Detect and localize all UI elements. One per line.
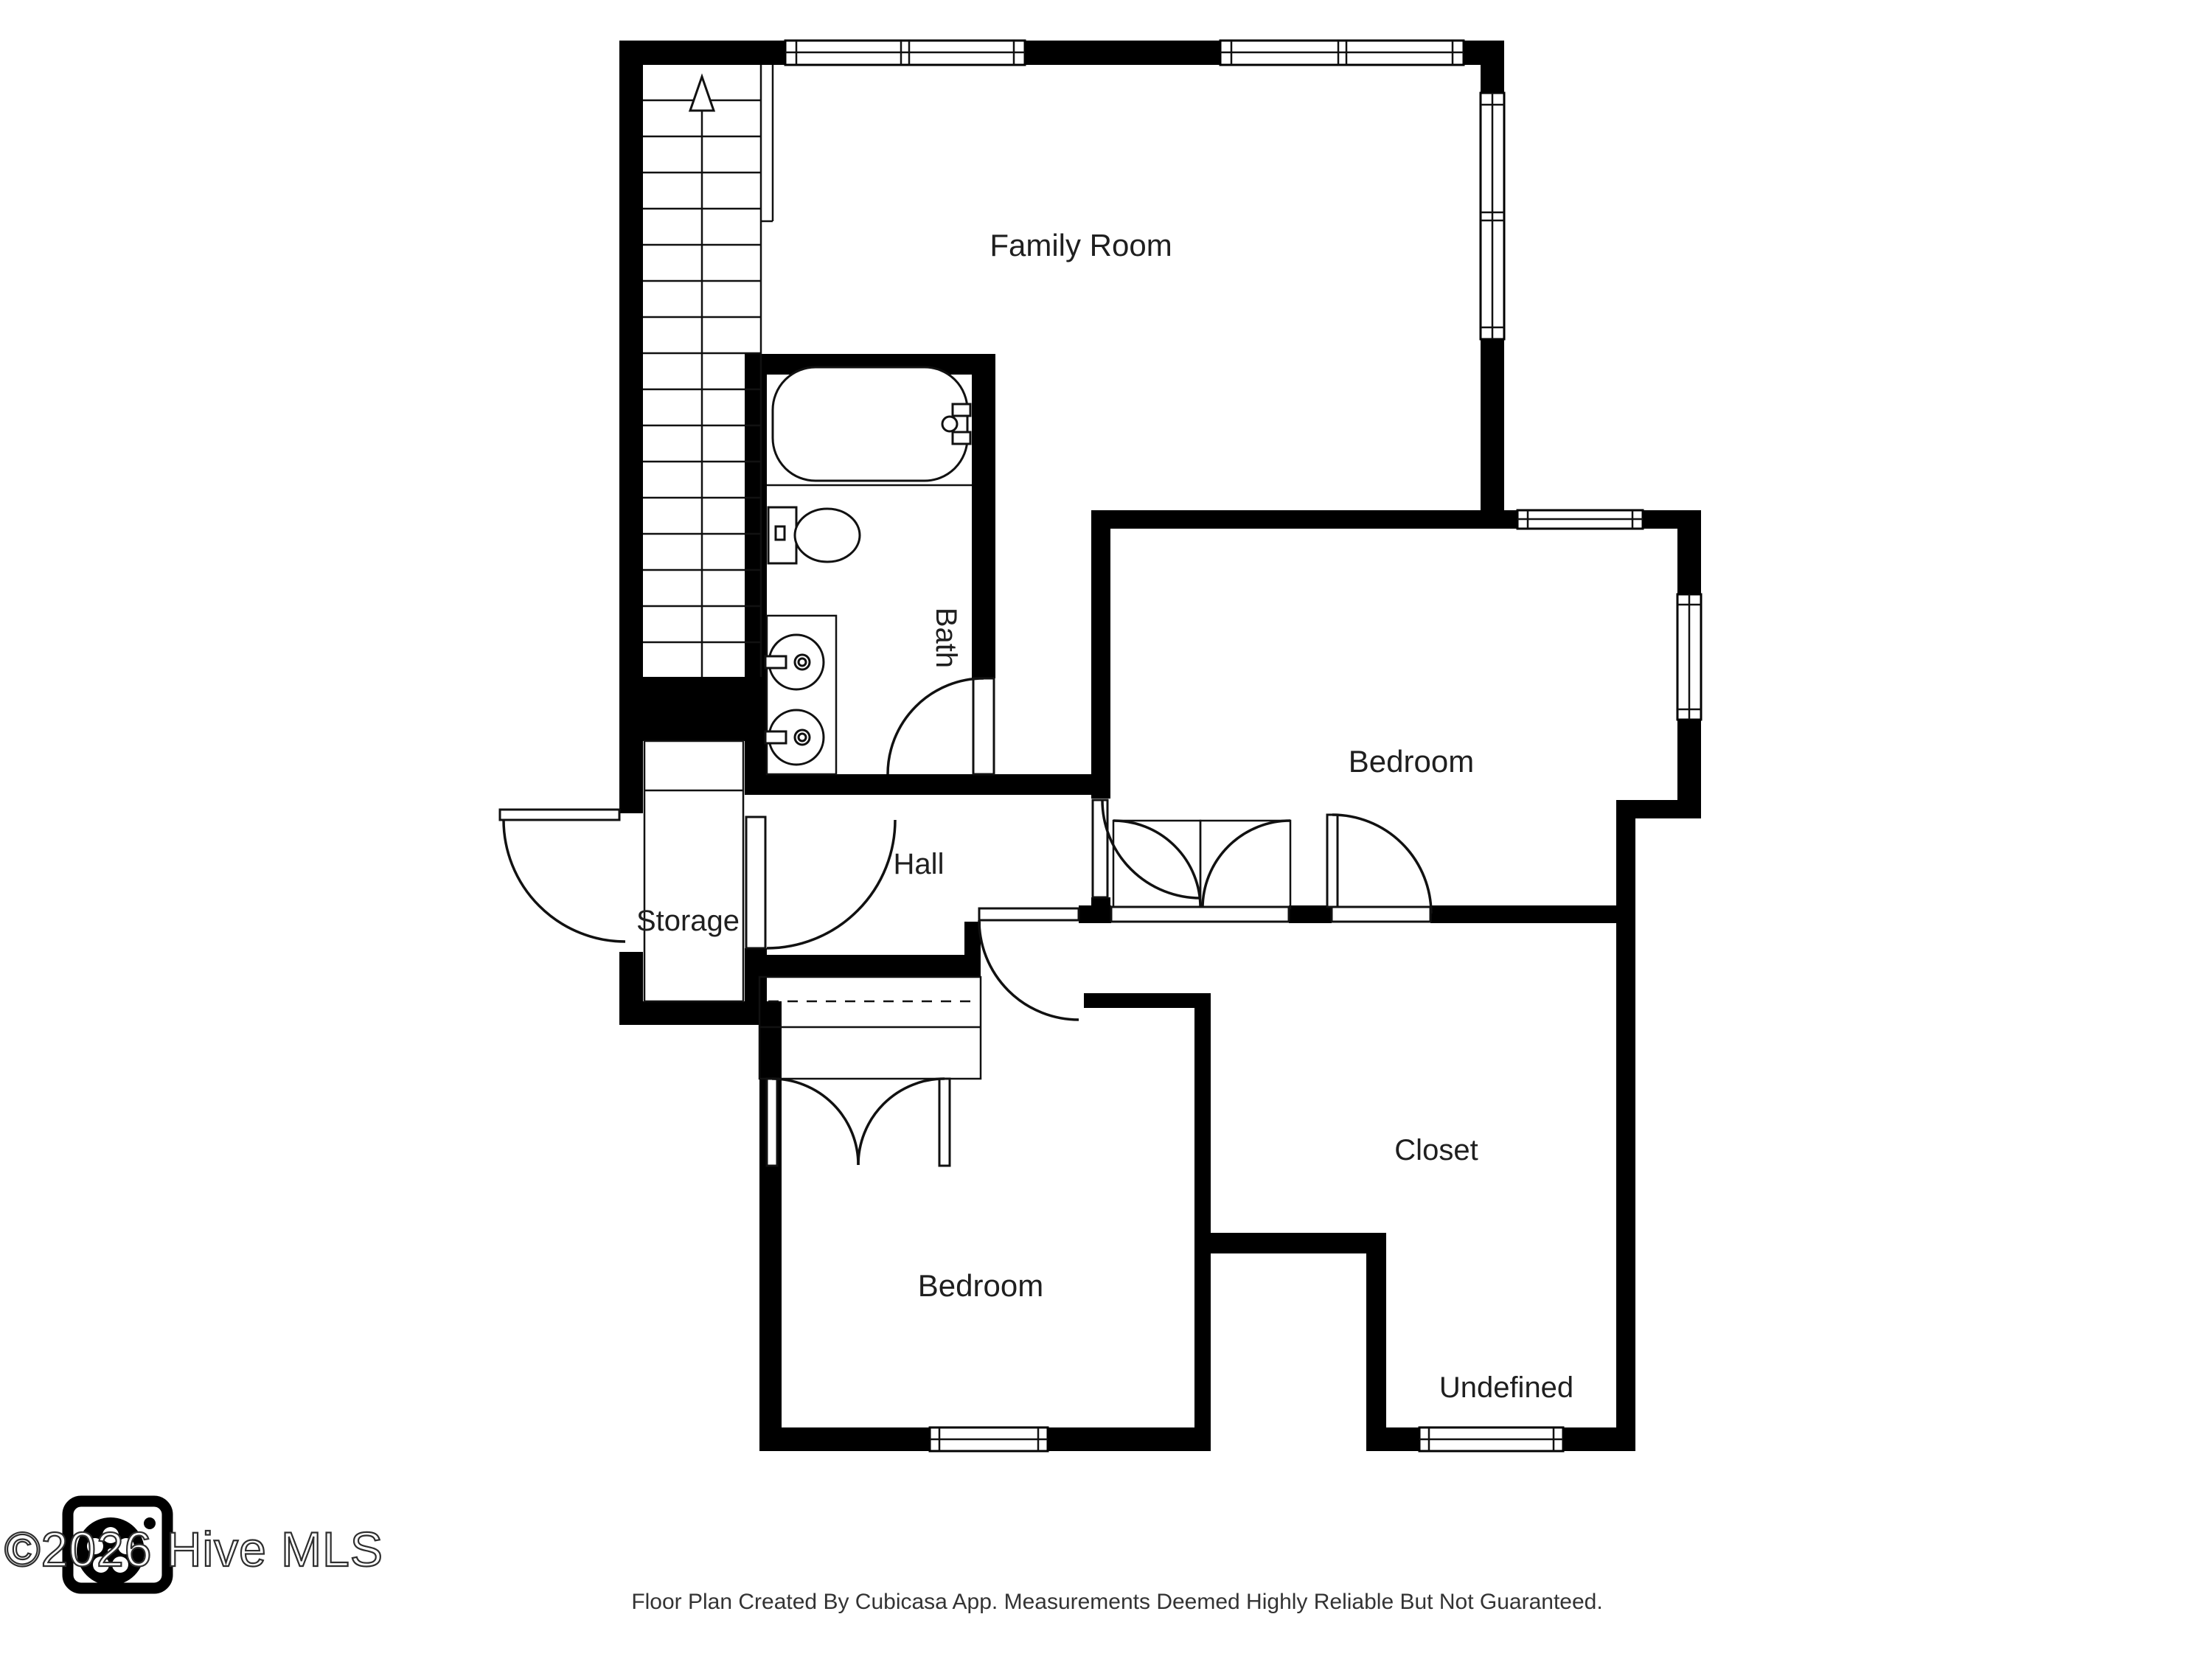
bedroom-right-label: Bedroom [1349,744,1474,779]
storage-hall-door [746,817,895,948]
footer-disclaimer: Floor Plan Created By Cubicasa App. Meas… [631,1590,1602,1614]
hall-closet-door [979,908,1079,1020]
undefined-window [1419,1427,1563,1451]
bath-door [888,678,994,774]
bedroom-top-window [1517,510,1643,529]
bedroom-closet-double-doors [1111,821,1290,922]
family-room-label: Family Room [990,228,1172,262]
floor-plan-canvas: Family Room Bath Bedroom Storage Hall Be… [0,0,2212,1659]
bedroom-entry-door [1093,800,1200,898]
wardrobe-double-doors [767,1079,950,1166]
hall-wardrobe [759,977,981,1079]
mls-watermark: ©2026 Hive MLS [4,1522,383,1576]
bathtub [767,367,972,485]
stairs-up-arrow-icon [690,77,714,111]
toilet [768,507,860,563]
bedroom-bottom-label: Bedroom [918,1268,1043,1303]
storage-room-outline [644,741,743,1001]
bedroom-south-door [1327,815,1431,922]
family-room-right-window [1481,93,1504,339]
bottom-bedroom-window [930,1427,1048,1451]
top-wall-window-left [785,41,1025,65]
vanity-double-sink [765,616,836,774]
bath-label: Bath [930,608,962,668]
top-wall-window-right [1220,41,1464,65]
bedroom-right-window [1677,594,1701,720]
hall-label: Hall [894,848,945,880]
storage-label: Storage [636,905,740,937]
closet-label: Closet [1394,1134,1478,1166]
undefined-label: Undefined [1439,1371,1573,1404]
floor-plan-page: Family Room Bath Bedroom Storage Hall Be… [0,0,2212,1659]
exterior-door-left [500,810,625,942]
